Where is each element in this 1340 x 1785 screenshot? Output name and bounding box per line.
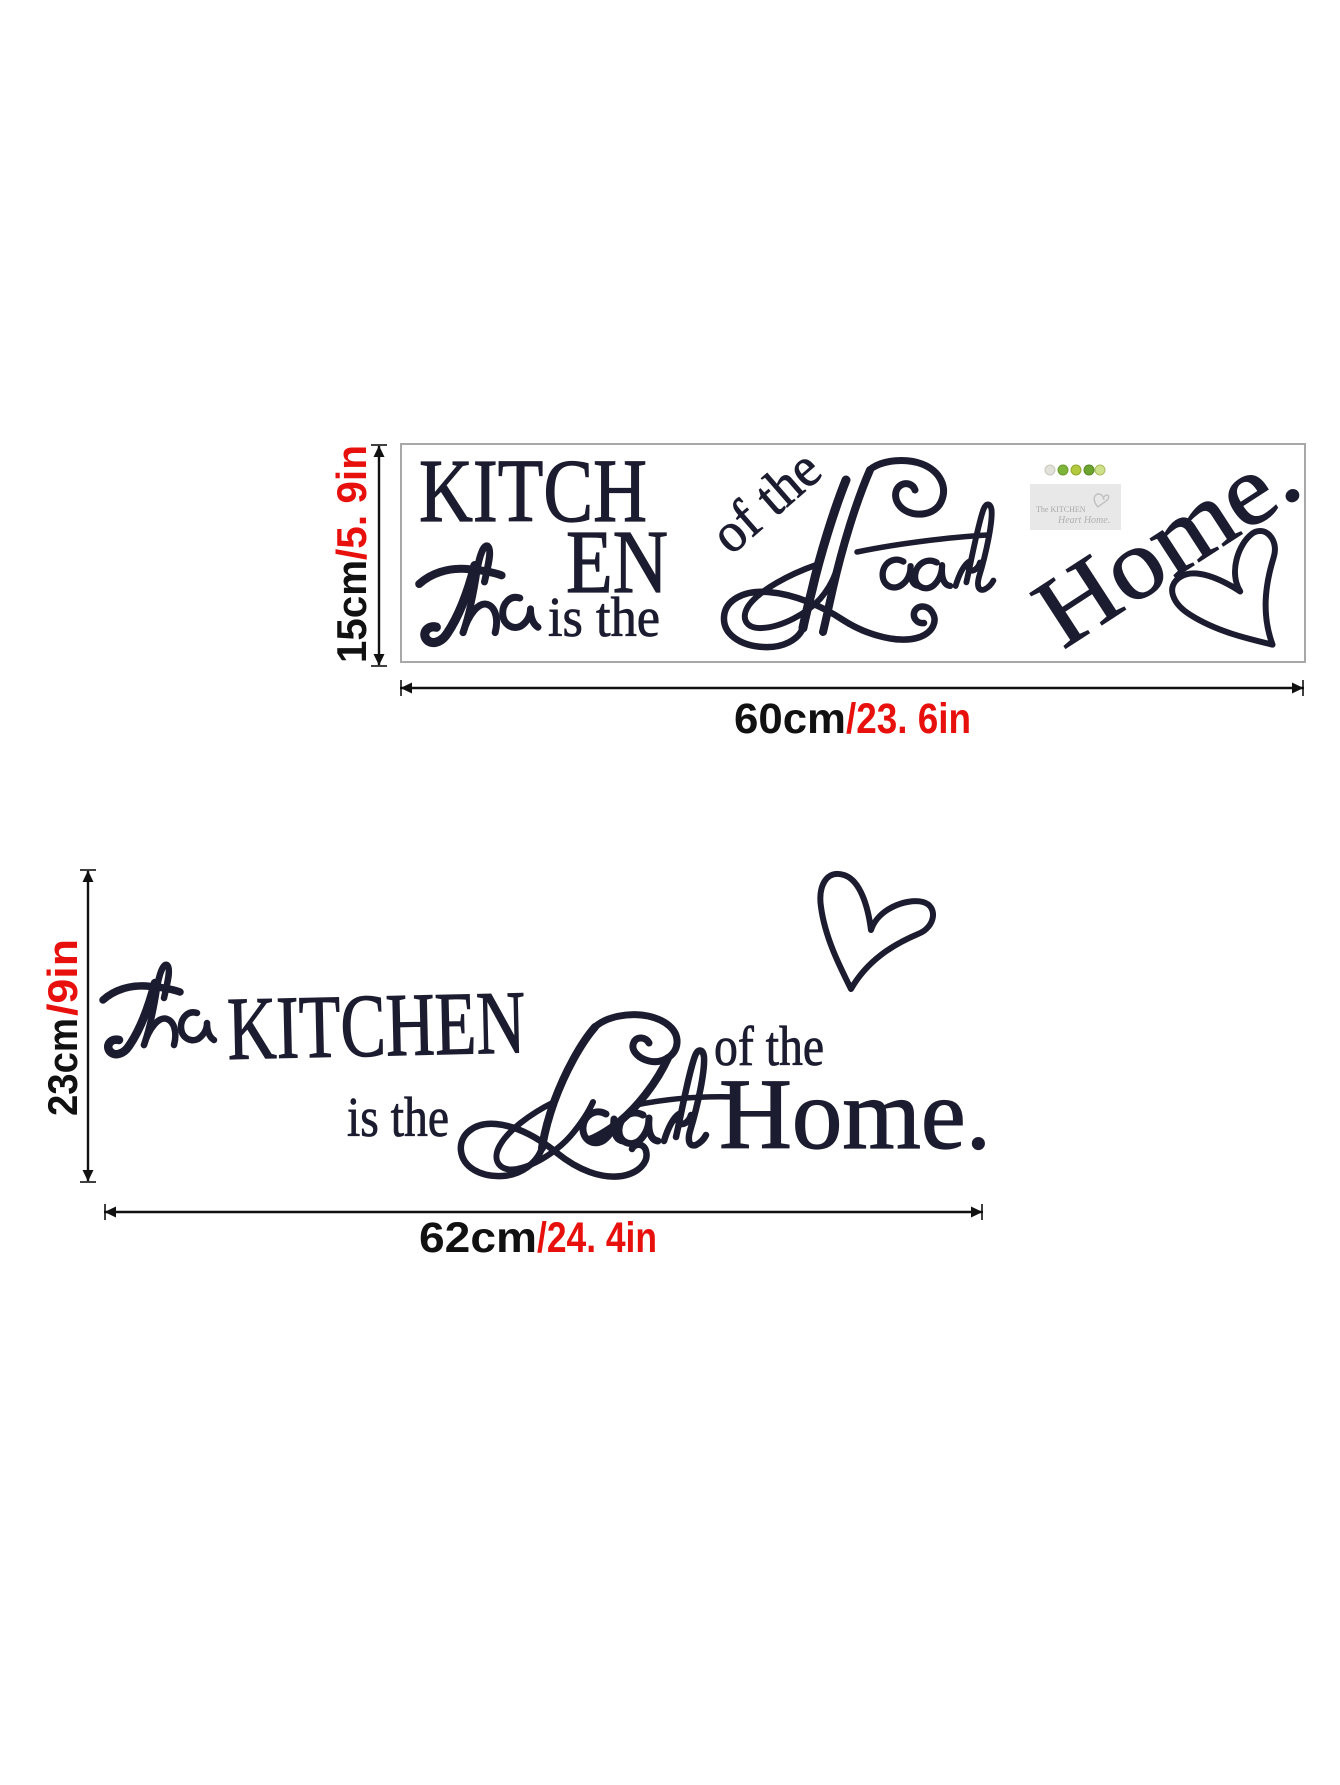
svg-text:/5. 9in: /5. 9in bbox=[328, 445, 375, 560]
svg-text:15cm: 15cm bbox=[328, 560, 375, 663]
svg-text:23cm: 23cm bbox=[39, 1018, 86, 1116]
svg-text:62cm: 62cm bbox=[419, 1214, 537, 1262]
svg-text:The KITCHEN: The KITCHEN bbox=[1036, 505, 1086, 514]
svg-text:/24. 4in: /24. 4in bbox=[537, 1214, 657, 1262]
svg-text:/9in: /9in bbox=[39, 939, 86, 1016]
svg-text:is the: is the bbox=[347, 1087, 449, 1149]
svg-text:is the: is the bbox=[548, 587, 660, 649]
svg-text:KITCHEN: KITCHEN bbox=[226, 973, 526, 1079]
svg-text:60cm: 60cm bbox=[734, 695, 846, 743]
svg-text:Home.: Home. bbox=[719, 1058, 991, 1170]
svg-text:/23. 6in: /23. 6in bbox=[846, 695, 971, 743]
